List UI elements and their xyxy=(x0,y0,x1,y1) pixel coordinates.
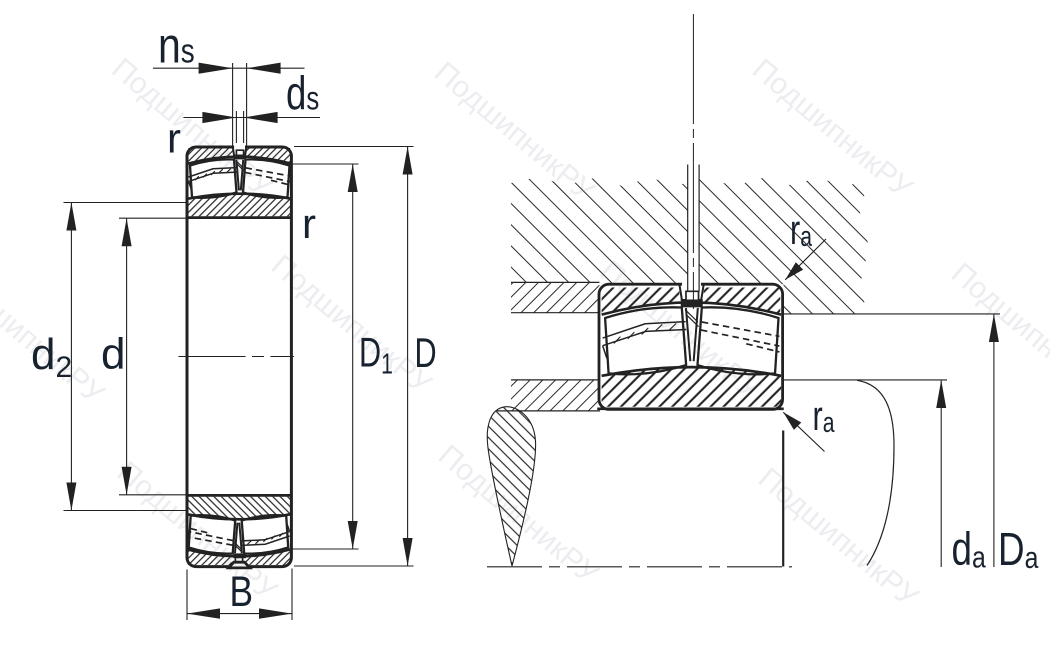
svg-text:d: d xyxy=(101,330,125,379)
svg-text:r: r xyxy=(302,200,316,247)
